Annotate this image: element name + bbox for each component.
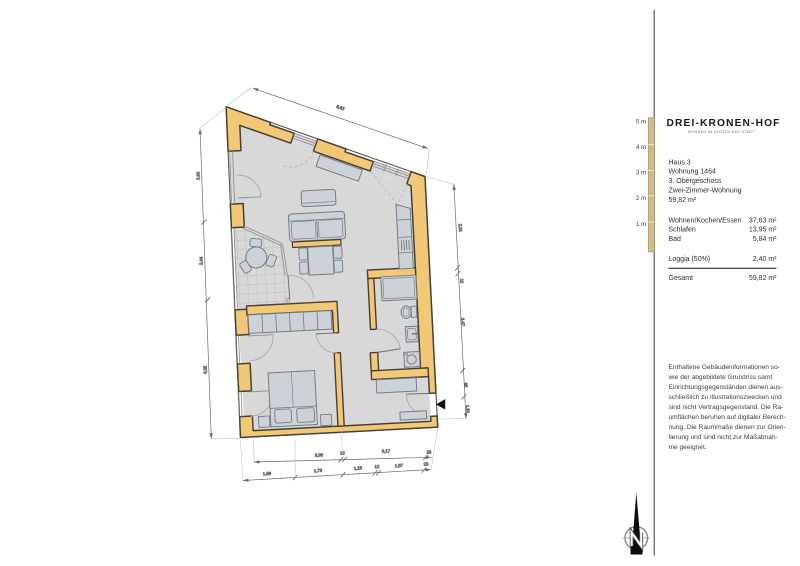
svg-text:6,62: 6,62 (336, 104, 346, 112)
svg-text:1,67: 1,67 (395, 463, 404, 468)
svg-text:Wohnung 1464: Wohnung 1464 (669, 169, 716, 176)
svg-text:23: 23 (423, 461, 429, 466)
svg-text:3,35: 3,35 (315, 452, 324, 457)
svg-text:13,95 m²: 13,95 m² (749, 227, 777, 234)
svg-text:2,90: 2,90 (195, 171, 200, 180)
svg-text:3. Obergeschoss: 3. Obergeschoss (669, 178, 722, 185)
svg-text:59,82 m²: 59,82 m² (749, 275, 777, 282)
svg-text:2,40 m²: 2,40 m² (753, 256, 777, 263)
svg-text:DREI-KRONEN-HOF: DREI-KRONEN-HOF (667, 118, 781, 129)
svg-text:1,73: 1,73 (314, 468, 323, 473)
svg-text:59,82 m²: 59,82 m² (669, 197, 697, 204)
svg-text:3 m: 3 m (636, 171, 646, 177)
svg-text:schließlich zu Illustrationszw: schließlich zu Illustrationszwecken und (669, 394, 783, 401)
svg-text:wie der abgebildete Grundriss: wie der abgebildete Grundriss samt (668, 374, 773, 381)
svg-text:nung. Die Raummaße dienen zur: nung. Die Raummaße dienen zur Orien- (669, 424, 786, 431)
svg-text:5 m: 5 m (636, 120, 646, 126)
svg-text:Haus 3: Haus 3 (669, 159, 691, 166)
svg-text:me geeignet.: me geeignet. (669, 444, 707, 451)
svg-text:Einrichtungsgegenständen diene: Einrichtungsgegenständen dienen aus- (669, 384, 783, 391)
svg-text:1,16: 1,16 (354, 465, 363, 470)
svg-text:4 m: 4 m (636, 145, 646, 151)
svg-text:2,44: 2,44 (198, 256, 203, 265)
svg-text:5,17: 5,17 (382, 448, 391, 453)
svg-text:12: 12 (459, 279, 464, 285)
svg-text:Enthaltene Gebäudeinformatione: Enthaltene Gebäudeinformationen so- (669, 364, 780, 371)
svg-text:5,84 m²: 5,84 m² (753, 236, 777, 243)
svg-text:Loggia (50%): Loggia (50%) (669, 256, 711, 263)
svg-text:1 m: 1 m (636, 222, 646, 228)
svg-text:4,25: 4,25 (202, 365, 207, 374)
svg-text:1,32: 1,32 (465, 405, 470, 414)
svg-text:umflächen beruhen auf digitale: umflächen beruhen auf digitaler Berech- (669, 414, 786, 421)
svg-text:WOHNEN IM HERZEN DER STADT: WOHNEN IM HERZEN DER STADT (688, 130, 755, 134)
svg-text:Gesamt: Gesamt (669, 275, 694, 282)
svg-text:23: 23 (426, 449, 432, 454)
svg-text:2 m: 2 m (636, 196, 646, 202)
svg-text:12: 12 (374, 464, 380, 469)
svg-text:65: 65 (463, 383, 468, 389)
svg-text:1,89: 1,89 (263, 471, 272, 476)
svg-text:2,91: 2,91 (458, 224, 463, 233)
svg-text:Bad: Bad (669, 236, 682, 243)
svg-text:tierung und sind nicht zur Maß: tierung und sind nicht zur Maßabnah- (669, 434, 778, 441)
svg-text:Schlafen: Schlafen (669, 227, 696, 234)
svg-text:37,63 m²: 37,63 m² (749, 217, 777, 224)
svg-text:Zwei-Zimmer-Wohnung: Zwei-Zimmer-Wohnung (669, 188, 742, 195)
svg-text:3,47: 3,47 (460, 318, 465, 327)
svg-text:sind nicht Vertragsgegenstand.: sind nicht Vertragsgegenstand. Die Ra- (669, 404, 784, 411)
svg-text:Wohnen/Kochen/Essen: Wohnen/Kochen/Essen (669, 217, 742, 224)
svg-text:12: 12 (340, 450, 346, 455)
